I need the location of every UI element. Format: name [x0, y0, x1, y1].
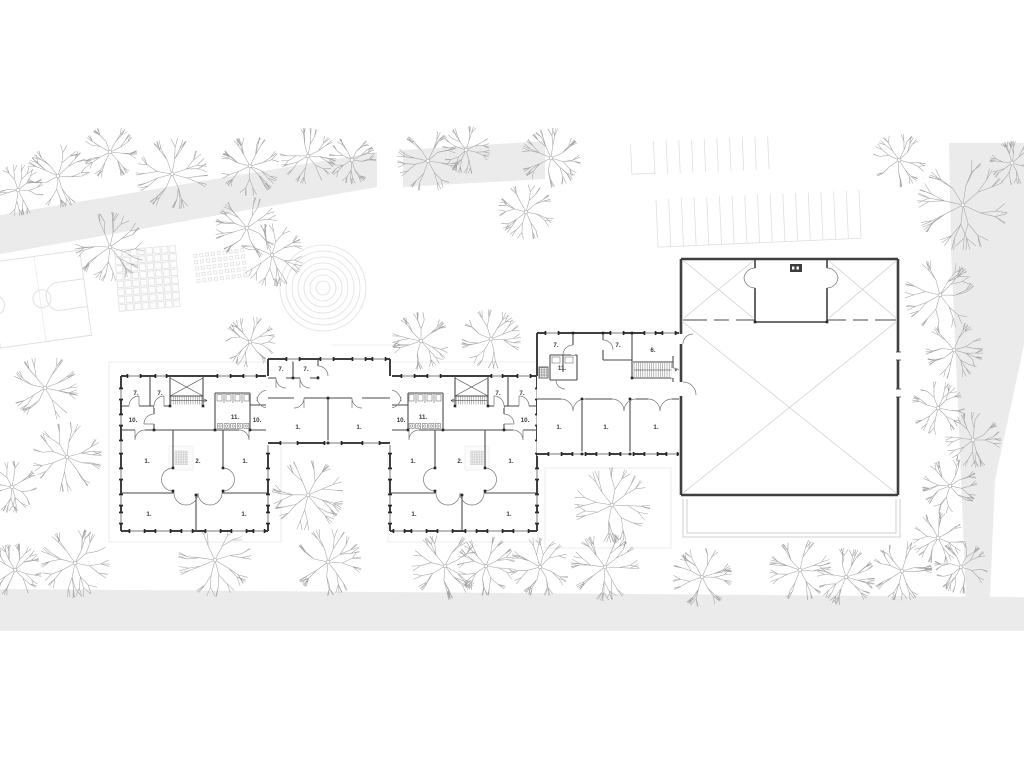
room-label: 7. [133, 390, 138, 397]
tree [462, 310, 521, 369]
tree [28, 145, 90, 208]
room-label: 1. [295, 424, 300, 431]
room-label: 7. [615, 342, 620, 349]
tree [0, 165, 43, 216]
room-label: 1. [242, 458, 247, 465]
room-label: 10. [253, 417, 262, 424]
room-label: 7. [303, 366, 308, 373]
room-label: 2. [457, 458, 462, 465]
tree [178, 525, 251, 597]
basketball-court [0, 250, 92, 348]
parking-layer [630, 132, 861, 248]
tree [412, 536, 476, 600]
tree [510, 538, 567, 596]
room-label: 10. [129, 417, 138, 424]
classroom-wing-east [387, 373, 539, 533]
room-label: 1. [356, 424, 361, 431]
tree [299, 529, 361, 595]
room-label: 11. [231, 414, 240, 421]
hall [679, 257, 901, 497]
room-label: 7. [519, 390, 524, 397]
room-label: 7. [495, 390, 500, 397]
room-label: 1. [506, 511, 511, 518]
road-right [949, 143, 1024, 597]
stepping-stones [194, 248, 247, 282]
room-label: 2. [195, 458, 200, 465]
room-label: 1. [653, 424, 658, 431]
tree [770, 540, 831, 599]
site-outline [545, 468, 671, 548]
site-plan-svg: 7.7.10.11.10.1.2.1.1.1.7.7.10.11.10.1.2.… [0, 0, 1024, 768]
tree [874, 542, 932, 601]
play-rings [280, 245, 366, 331]
room-label: 1. [508, 458, 513, 465]
tree [873, 134, 925, 187]
tree [571, 535, 639, 601]
tree [393, 313, 449, 370]
tree [14, 358, 77, 419]
classroom-wing-west [118, 373, 270, 533]
road-upper_b [403, 141, 545, 187]
room-label: 7. [157, 390, 162, 397]
room-label: 1. [144, 458, 149, 465]
room-label: 10. [397, 417, 406, 424]
tree [41, 530, 110, 598]
paver-grid [114, 246, 180, 312]
building-layer [118, 257, 901, 534]
floor-plan-canvas: 7.7.10.11.10.1.2.1.1.1.7.7.10.11.10.1.2.… [0, 0, 1024, 768]
tree [242, 224, 303, 287]
room-label: 11. [419, 414, 428, 421]
room-label: 6. [650, 347, 655, 354]
room-label: 1. [410, 458, 415, 465]
tree [33, 422, 101, 491]
room-label: 1. [556, 424, 561, 431]
room-label: 11. [558, 365, 567, 372]
tree [0, 544, 41, 596]
room-label: 1. [411, 511, 416, 518]
tree [499, 185, 553, 240]
tree [85, 128, 137, 178]
tree [912, 382, 964, 435]
room-label: 7. [553, 342, 558, 349]
room-label: 7. [278, 366, 283, 373]
tree [272, 461, 343, 531]
room-label: 1. [241, 511, 246, 518]
room-label: 10. [521, 417, 530, 424]
room-label: 1. [146, 511, 151, 518]
east-wing [537, 330, 683, 456]
tree [457, 537, 516, 595]
tree [0, 461, 37, 512]
room-label: 1. [603, 424, 608, 431]
play-features-layer [0, 245, 366, 348]
parking-stalls [630, 132, 861, 248]
road-bottom [0, 589, 1024, 631]
west-connector [266, 356, 392, 445]
tree [575, 468, 651, 543]
